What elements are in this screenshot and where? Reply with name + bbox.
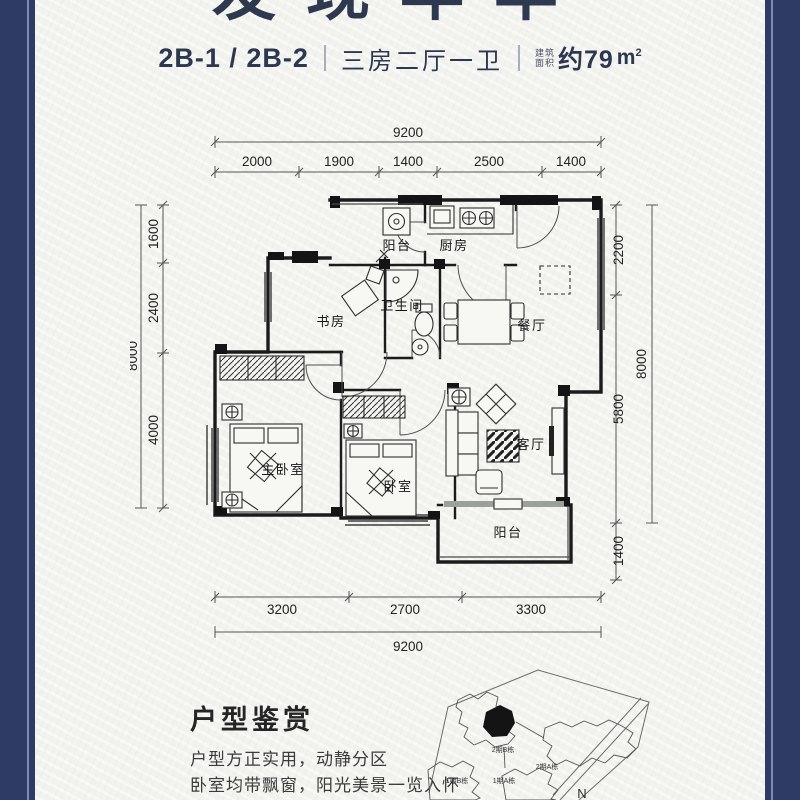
subtitle-divider (518, 45, 520, 71)
dim-bottom-total: 9200 (393, 639, 423, 654)
area-label-top: 建筑 (535, 48, 555, 58)
north-label: N (577, 786, 586, 800)
room-label-study: 书房 (316, 314, 345, 329)
master-bed (220, 356, 304, 512)
dim-left-total: 8000 (130, 341, 140, 371)
left-border (0, 0, 35, 800)
site-label-1b: 1期B栋 (446, 776, 469, 785)
area-unit-sup: 2 (635, 47, 641, 59)
room-label-bedroom: 卧室 (383, 479, 412, 494)
area-label: 建筑 面积 (535, 48, 555, 68)
dim-left-seg-1: 1600 (146, 219, 161, 249)
area-unit: m2 (617, 46, 642, 70)
kitchen-counter (427, 205, 513, 234)
dim-left-seg-2: 2400 (146, 293, 161, 323)
room-label-living: 客厅 (516, 437, 545, 452)
dim-left-seg-3: 4000 (146, 415, 161, 445)
unit-code: 2B-1 / 2B-2 (158, 43, 309, 74)
area-unit-letter: m (617, 46, 636, 69)
project-title-text: 发现年华 (35, 0, 765, 24)
dim-top-seg-5: 1400 (556, 154, 586, 169)
left-accent-line (27, 0, 29, 800)
site-label-2a: 2期A栋 (536, 762, 559, 771)
poster-page: 发现年华 2B-1 / 2B-2 三房二厅一卫 建筑 面积 约79 m2 (0, 0, 800, 800)
site-label-1a: 1期A栋 (493, 776, 516, 785)
washing-machine (383, 208, 410, 235)
dim-top-seg-1: 2000 (242, 154, 272, 169)
area-label-bottom: 面积 (535, 58, 555, 68)
site-label-2b: 2期B栋 (492, 745, 515, 754)
room-label-balcony-top: 阳台 (382, 238, 411, 253)
unit-subtitle-row: 2B-1 / 2B-2 三房二厅一卫 建筑 面积 约79 m2 (35, 40, 765, 76)
dim-right-total: 8000 (634, 349, 649, 379)
dim-right-seg-3: 1400 (611, 536, 626, 566)
room-label-master-bedroom: 主卧室 (261, 462, 305, 477)
site-map: 2期B栋 2期A栋 1期B栋 1期A栋 N (415, 660, 655, 800)
subtitle-divider (324, 45, 326, 71)
dining-set (444, 300, 524, 344)
project-title-clipped: 发现年华 (35, 0, 765, 27)
dim-top-total: 9200 (393, 125, 423, 140)
balcony-slider (444, 499, 564, 509)
dim-bottom-seg-1: 3200 (267, 602, 297, 617)
dim-top-seg-4: 2500 (474, 154, 504, 169)
area-group: 建筑 面积 约79 m2 (535, 40, 642, 76)
bedroom-bed (343, 396, 416, 516)
dim-right-seg-1: 2200 (611, 235, 626, 265)
dim-top-seg-2: 1900 (324, 154, 354, 169)
area-value: 约79 (558, 40, 614, 76)
room-label-balcony-bottom: 阳台 (493, 525, 522, 540)
dim-top-seg-3: 1400 (393, 154, 423, 169)
floor-plan: 9200 2000 1900 1400 2500 1400 8000 1600 … (130, 118, 660, 666)
dim-bottom-seg-3: 3300 (516, 602, 546, 617)
room-label-dining: 餐厅 (517, 318, 546, 333)
right-accent-line (771, 0, 773, 800)
layout-description: 三房二厅一卫 (341, 41, 503, 76)
room-label-bathroom: 卫生间 (380, 298, 424, 313)
room-label-kitchen: 厨房 (439, 238, 468, 253)
site-labels: 2期B栋 2期A栋 1期B栋 1期A栋 N (446, 745, 587, 800)
living-room-set (446, 384, 564, 494)
dim-bottom-seg-2: 2700 (390, 602, 420, 617)
dim-right-seg-2: 5800 (611, 394, 626, 424)
fridge-space (540, 266, 570, 294)
